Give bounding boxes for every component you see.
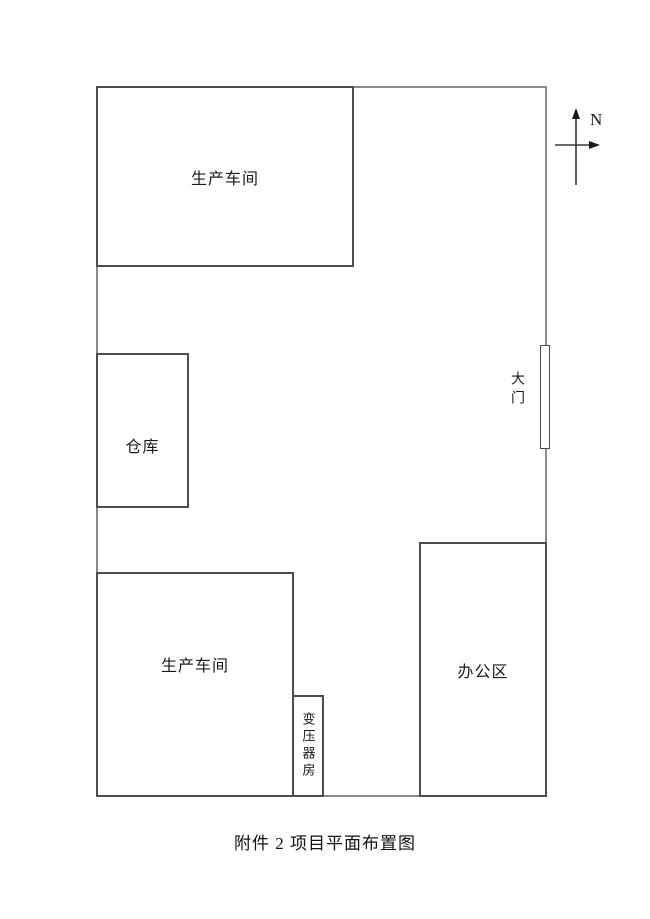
building-production-workshop-bottom: 生产车间	[96, 572, 294, 797]
building-label: 生产车间	[161, 652, 229, 676]
figure-caption: 附件 2 项目平面布置图	[0, 829, 650, 854]
building-label: 办公区	[457, 658, 508, 682]
building-transformer-room: 变压器房	[292, 695, 324, 797]
building-label: 仓库	[125, 433, 159, 457]
building-warehouse: 仓库	[96, 353, 189, 508]
building-production-workshop-top: 生产车间	[96, 86, 354, 267]
site-plan-diagram: 生产车间 仓库 生产车间 变压器房 办公区 大门 N 附件 2 项目平面布置图	[0, 0, 650, 919]
building-office-area: 办公区	[419, 542, 547, 797]
north-label: N	[590, 110, 602, 129]
gate-symbol	[540, 345, 550, 449]
gate-label: 大门	[506, 371, 526, 409]
building-label: 变压器房	[299, 712, 318, 780]
building-label: 生产车间	[191, 165, 259, 189]
north-arrow-icon: N	[548, 100, 618, 195]
